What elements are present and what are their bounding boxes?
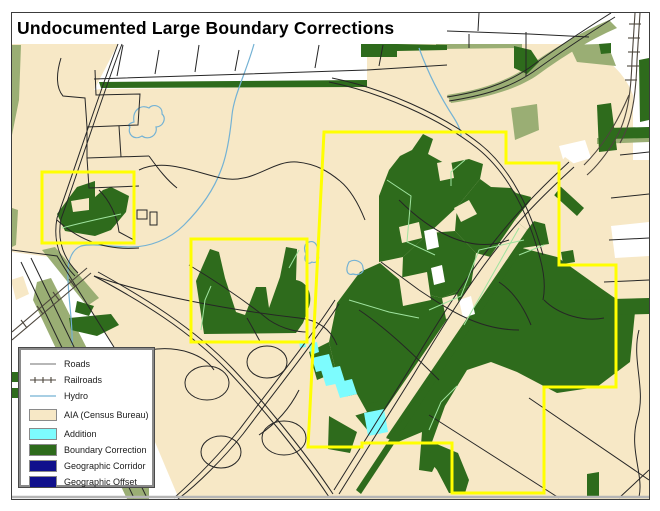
legend-label: AIA (Census Bureau) bbox=[64, 410, 149, 420]
railroads-line-swatch bbox=[29, 374, 57, 386]
map-title: Undocumented Large Boundary Corrections bbox=[17, 18, 394, 39]
roads-line-swatch bbox=[29, 358, 57, 370]
legend-label: Boundary Correction bbox=[64, 445, 147, 455]
aia-fill-swatch bbox=[29, 409, 57, 421]
hydro-line-swatch bbox=[29, 390, 57, 402]
legend-item-geographic-corridor: Geographic Corridor bbox=[29, 458, 152, 474]
legend-item-roads: Roads bbox=[29, 356, 152, 372]
legend-box: Roads Railroads Hydro bbox=[19, 348, 154, 487]
boundary-correction-fill-swatch bbox=[29, 444, 57, 456]
geographic-offset-fill-swatch bbox=[29, 476, 57, 488]
geographic-corridor-fill-swatch bbox=[29, 460, 57, 472]
legend-label: Hydro bbox=[64, 391, 88, 401]
legend-item-boundary-correction: Boundary Correction bbox=[29, 442, 152, 458]
legend-item-aia: AIA (Census Bureau) bbox=[29, 407, 152, 423]
legend-label: Roads bbox=[64, 359, 90, 369]
addition-fill-swatch bbox=[29, 428, 57, 440]
legend-item-addition: Addition bbox=[29, 426, 152, 442]
map-frame: Undocumented Large Boundary Corrections … bbox=[11, 12, 650, 500]
page: Undocumented Large Boundary Corrections … bbox=[0, 0, 660, 511]
legend-label: Geographic Corridor bbox=[64, 461, 146, 471]
legend-item-geographic-offset: Geographic Offset bbox=[29, 474, 152, 490]
legend-item-railroads: Railroads bbox=[29, 372, 152, 388]
legend-label: Railroads bbox=[64, 375, 102, 385]
legend-label: Geographic Offset bbox=[64, 477, 137, 487]
legend-label: Addition bbox=[64, 429, 97, 439]
legend-item-hydro: Hydro bbox=[29, 388, 152, 404]
